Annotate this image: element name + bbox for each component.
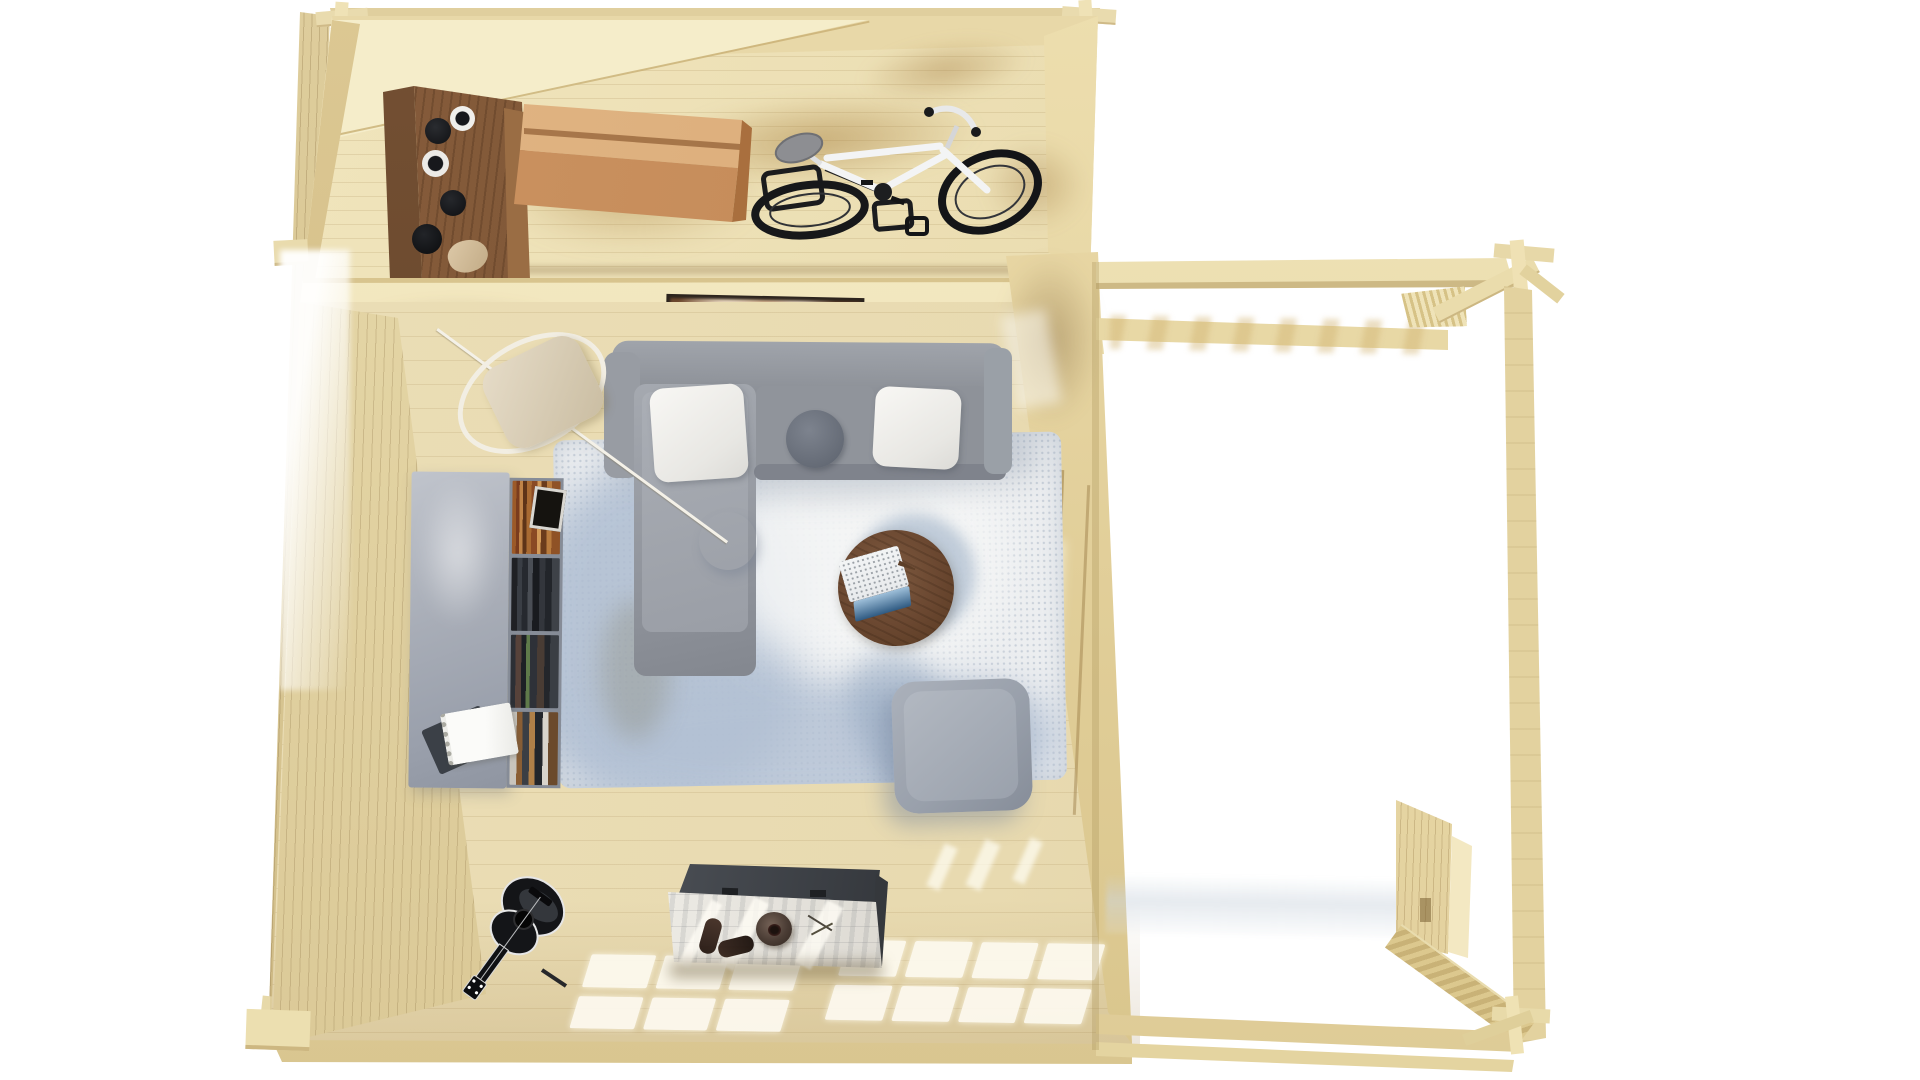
pergola-bottom-beam	[0, 0, 1920, 1080]
pergola-right-post	[0, 0, 1920, 1080]
pergola-far-beam	[0, 0, 1920, 1080]
pergola	[0, 0, 1920, 1080]
gate-notch	[1420, 898, 1431, 922]
pergola-bottom-beam	[0, 0, 1920, 1080]
wall-attachment-seam	[1092, 262, 1099, 1050]
scene	[0, 0, 1920, 1080]
pergola-beam-edge	[0, 0, 1920, 1080]
side-gate-panel-light	[0, 0, 1920, 1080]
terrace-band	[1106, 873, 1422, 938]
side-gate-panel	[0, 0, 1920, 1080]
sun-reflections	[1110, 315, 1441, 355]
pergola-top-beam	[0, 0, 1920, 1080]
